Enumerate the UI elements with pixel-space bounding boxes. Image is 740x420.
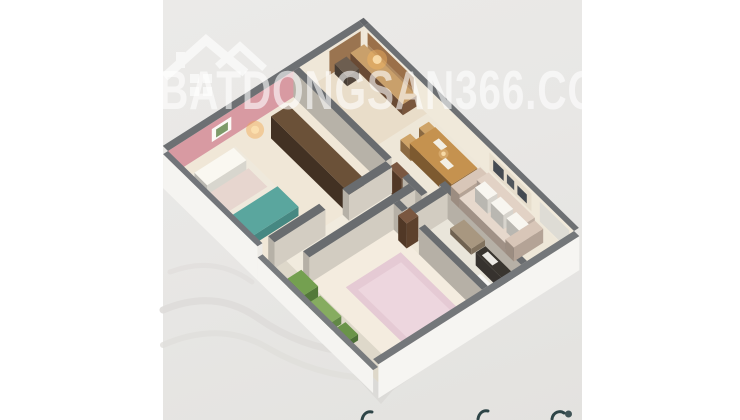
background-wave	[170, 265, 252, 282]
real-estate-listing-photo: BATDONGSAN366.COM	[0, 0, 740, 420]
dining-centerpiece	[441, 152, 446, 157]
cutoff-text-mark	[552, 412, 564, 419]
cutoff-text-dot	[565, 411, 572, 418]
bedside-lamp	[251, 126, 259, 134]
floorplan-3d-scene	[0, 0, 740, 420]
cutoff-text-mark	[362, 412, 372, 420]
cutoff-text-mark	[478, 411, 488, 419]
kitchen-light	[373, 55, 382, 64]
